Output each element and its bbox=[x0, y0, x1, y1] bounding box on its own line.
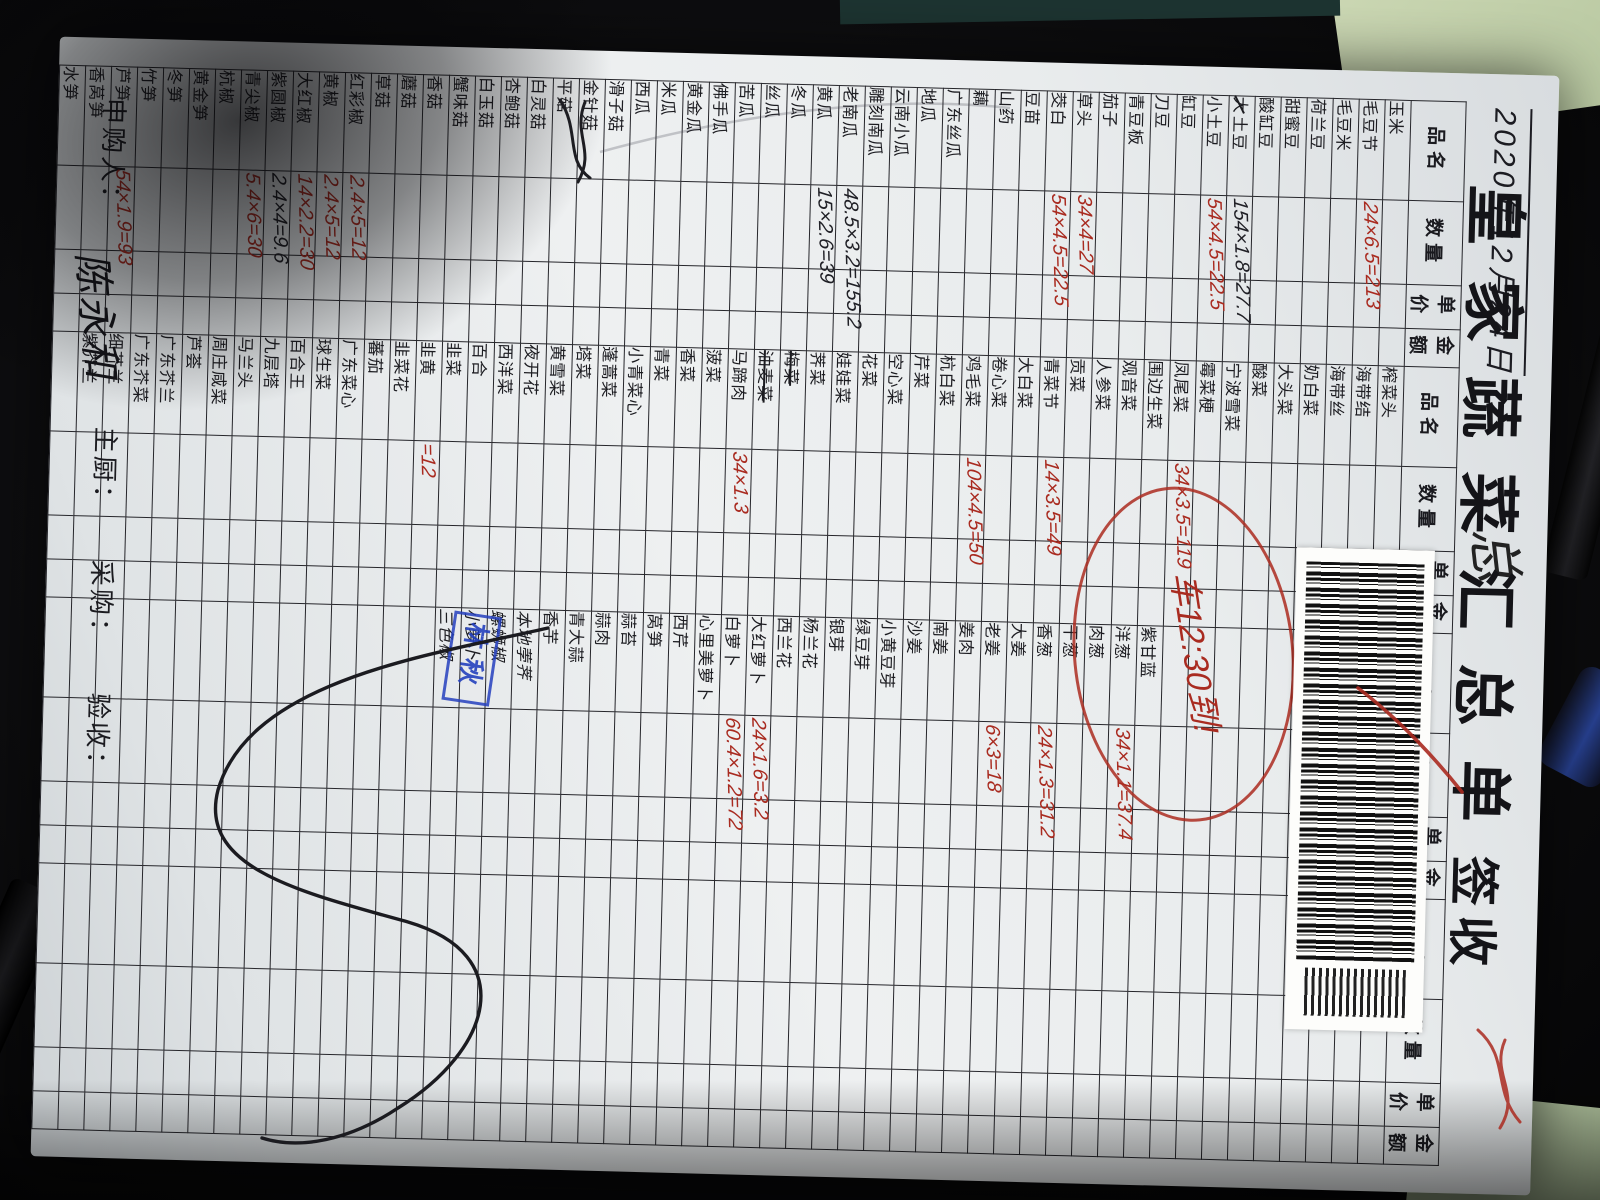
unit-price-cell bbox=[229, 520, 256, 565]
quantity-cell bbox=[353, 705, 381, 790]
item-name-cell: 荠菜 bbox=[804, 351, 833, 452]
amount-cell bbox=[1052, 851, 1079, 890]
item-name-cell: 青菜 bbox=[648, 347, 677, 448]
item-name-cell bbox=[251, 602, 280, 703]
amount-cell bbox=[877, 581, 904, 620]
handwritten-quantity: 104×4.5=50 bbox=[961, 456, 986, 542]
amount-cell bbox=[663, 841, 690, 880]
item-name-cell: 小土豆 bbox=[1201, 95, 1230, 196]
item-name-cell: 茭白 bbox=[1045, 91, 1074, 192]
quantity-cell bbox=[223, 702, 251, 787]
item-name-cell: 心里美萝卜 bbox=[693, 614, 722, 715]
quantity-cell bbox=[814, 983, 842, 1068]
item-name: 马蹄肉 bbox=[729, 349, 748, 402]
amount-cell bbox=[806, 313, 833, 352]
quantity-cell bbox=[757, 183, 785, 268]
item-name: 豆苗 bbox=[1022, 91, 1041, 126]
item-name: 水笋 bbox=[61, 66, 80, 101]
quantity-cell bbox=[159, 168, 187, 253]
item-name-cell: 南姜 bbox=[927, 620, 956, 721]
quantity-cell bbox=[776, 450, 804, 535]
quantity-cell bbox=[1094, 192, 1122, 277]
item-name-cell bbox=[199, 601, 228, 702]
requester-signature: 陈永和 bbox=[66, 250, 134, 383]
amount-cell bbox=[1201, 1121, 1228, 1160]
item-name: 西瓜 bbox=[633, 81, 652, 116]
item-name-cell: 韭菜花 bbox=[388, 340, 417, 441]
item-name-cell: 青尖椒 bbox=[239, 70, 268, 171]
quantity-cell bbox=[431, 707, 459, 792]
amount-cell bbox=[592, 573, 619, 612]
form-title-suffix: 签收 bbox=[1443, 855, 1502, 976]
item-name: 土豆 bbox=[1230, 116, 1249, 151]
amount-cell bbox=[370, 1100, 397, 1139]
unit-price-cell bbox=[989, 274, 1016, 319]
item-name: 缸豆 bbox=[1178, 95, 1197, 130]
unit-price-cell bbox=[871, 803, 898, 848]
quantity-cell bbox=[892, 985, 920, 1070]
quantity-cell bbox=[1055, 723, 1083, 808]
unit-price-cell bbox=[215, 1051, 242, 1096]
item-name-cell: 广东芥兰 bbox=[154, 334, 183, 435]
item-name-cell: 刀豆 bbox=[1149, 94, 1178, 195]
item-name-cell: 空心菜 bbox=[882, 353, 911, 454]
item-name-cell: 周庄咸菜 bbox=[206, 335, 235, 436]
item-name-cell: 杭椒 bbox=[213, 69, 242, 170]
amount-cell bbox=[689, 842, 716, 881]
item-name: 菠菜 bbox=[704, 349, 723, 384]
item-name-cell: 香葱 bbox=[1031, 623, 1060, 724]
quantity-cell bbox=[133, 167, 161, 252]
unit-price-cell bbox=[210, 253, 237, 298]
unit-price-cell bbox=[600, 263, 627, 308]
item-name-cell bbox=[381, 606, 410, 707]
quantity-cell: 34×1.3 bbox=[724, 449, 752, 534]
quantity-cell bbox=[1172, 194, 1200, 279]
quantity-cell bbox=[301, 704, 329, 789]
item-name-cell bbox=[920, 886, 949, 987]
unit-price-cell bbox=[755, 267, 782, 312]
unit-price-cell bbox=[839, 1068, 866, 1113]
unit-price-cell bbox=[496, 261, 523, 306]
item-name-cell bbox=[1024, 889, 1053, 990]
unit-price-cell bbox=[430, 791, 457, 836]
unit-price-cell bbox=[189, 1051, 216, 1096]
quantity-cell bbox=[119, 699, 147, 784]
unit-price-cell bbox=[937, 272, 964, 317]
amount-cell bbox=[455, 836, 482, 875]
item-name-cell bbox=[1206, 893, 1235, 994]
unit-price-cell bbox=[33, 1047, 60, 1092]
item-name-cell: 姜肉 bbox=[953, 621, 982, 722]
item-name: 广东丝瓜 bbox=[944, 89, 964, 159]
unit-price-cell bbox=[118, 783, 145, 828]
amount-cell bbox=[1019, 1117, 1046, 1156]
quantity-cell bbox=[242, 968, 270, 1053]
amount-cell bbox=[890, 1113, 917, 1152]
item-name-cell bbox=[400, 872, 429, 973]
unit-price-cell bbox=[1202, 1077, 1229, 1122]
unit-price-cell bbox=[1150, 1076, 1177, 1121]
quantity-cell bbox=[1178, 993, 1206, 1078]
quantity-cell bbox=[1230, 994, 1258, 1079]
amount-cell bbox=[365, 301, 392, 340]
unit-price-cell bbox=[392, 258, 419, 303]
unit-price-cell bbox=[1124, 1075, 1151, 1120]
amount-cell bbox=[500, 1103, 527, 1142]
amount-cell bbox=[962, 317, 989, 356]
quantity-cell bbox=[367, 173, 395, 258]
unit-price-cell bbox=[59, 1047, 86, 1092]
quantity-cell bbox=[502, 975, 530, 1060]
amount-cell bbox=[254, 564, 281, 603]
item-name: 西芹 bbox=[671, 614, 690, 649]
item-name-cell: 芹菜 bbox=[908, 353, 937, 454]
amount-cell bbox=[533, 838, 560, 877]
receiver-label: 验收： bbox=[79, 692, 118, 780]
crossed-out-prefix: 大 bbox=[1231, 96, 1249, 114]
unit-price-cell bbox=[761, 1066, 788, 1111]
amount-cell bbox=[391, 302, 418, 341]
quantity-cell bbox=[568, 445, 596, 530]
unit-price-cell bbox=[664, 797, 691, 842]
item-name: 奶白菜 bbox=[1301, 364, 1320, 417]
item-name: 毛豆节 bbox=[1360, 100, 1379, 153]
item-name-cell: 滑子菇 bbox=[603, 79, 632, 180]
amount-cell bbox=[261, 298, 288, 337]
item-name: 银芽 bbox=[827, 618, 846, 653]
item-name-cell: 平菇 bbox=[551, 78, 580, 179]
item-name-cell: 广东菜心 bbox=[336, 338, 365, 439]
amount-cell bbox=[786, 1110, 813, 1149]
unit-price-cell bbox=[236, 254, 263, 299]
unit-price-cell bbox=[553, 1060, 580, 1105]
item-name-cell bbox=[277, 603, 306, 704]
item-name-cell bbox=[147, 600, 176, 701]
barcode-bars bbox=[1296, 561, 1424, 962]
quantity-cell bbox=[379, 706, 407, 791]
unit-price-cell bbox=[579, 1061, 606, 1106]
unit-price-cell bbox=[333, 522, 360, 567]
item-name: 刀豆 bbox=[1152, 94, 1171, 129]
amount-cell bbox=[488, 570, 515, 609]
amount-cell bbox=[422, 1101, 449, 1140]
quantity-cell bbox=[658, 979, 686, 1064]
item-name: 芦荟 bbox=[184, 335, 203, 370]
item-name-cell bbox=[355, 605, 384, 706]
amount-cell bbox=[436, 569, 463, 608]
quantity-cell bbox=[1146, 194, 1174, 279]
amount-cell bbox=[702, 310, 729, 349]
item-name-cell bbox=[608, 878, 637, 979]
quantity-cell bbox=[178, 434, 206, 519]
amount-cell bbox=[1045, 1117, 1072, 1156]
item-name: 大红椒 bbox=[294, 72, 313, 125]
unit-price-cell bbox=[735, 1065, 762, 1110]
item-name-cell: 鸡毛菜 bbox=[960, 355, 989, 456]
amount-cell bbox=[292, 1098, 319, 1137]
amount-cell bbox=[1007, 584, 1034, 623]
amount-cell bbox=[358, 567, 385, 606]
amount-cell bbox=[955, 583, 982, 622]
unit-price-cell bbox=[1176, 1077, 1203, 1122]
amount-cell bbox=[1227, 1122, 1254, 1161]
unit-price-cell bbox=[794, 801, 821, 846]
item-name-cell: 花菜 bbox=[856, 352, 885, 453]
amount-cell bbox=[573, 307, 600, 346]
amount-cell bbox=[266, 1097, 293, 1136]
item-name-cell: 香菇 bbox=[421, 75, 450, 176]
item-name: 小青菜心 bbox=[625, 346, 645, 416]
quantity-cell bbox=[632, 978, 660, 1063]
amount-cell bbox=[183, 296, 210, 335]
amount-cell bbox=[552, 1104, 579, 1143]
amount-cell bbox=[313, 300, 340, 339]
quantity-cell bbox=[450, 974, 478, 1059]
item-name-cell: 大头菜 bbox=[1272, 363, 1301, 464]
item-name: 沙姜 bbox=[905, 620, 924, 655]
amount-cell bbox=[124, 561, 151, 600]
unit-price-cell bbox=[281, 521, 308, 566]
quantity-cell bbox=[171, 700, 199, 785]
amount-cell bbox=[1357, 1125, 1384, 1164]
unit-price-cell bbox=[527, 1060, 554, 1105]
unit-price-cell bbox=[378, 790, 405, 835]
quantity-cell bbox=[1256, 995, 1284, 1080]
quantity-cell: 24×1.3=31.2 bbox=[1029, 723, 1057, 808]
quantity-cell: 6×3=18 bbox=[977, 721, 1005, 806]
item-name-cell: 小黄豆芽 bbox=[875, 619, 904, 720]
unit-price-cell bbox=[800, 535, 827, 580]
column-header: 品名 bbox=[1409, 100, 1467, 201]
unit-price-cell bbox=[1280, 1079, 1307, 1124]
item-name: 云南小瓜 bbox=[892, 87, 912, 157]
column-header: 品名 bbox=[1402, 366, 1460, 467]
handwritten-quantity: 54×1.9=93 bbox=[110, 168, 135, 254]
item-name-cell bbox=[764, 882, 793, 983]
item-name-cell: 大红萝卜 bbox=[745, 615, 774, 716]
amount-cell bbox=[507, 837, 534, 876]
amount-cell bbox=[1331, 1125, 1358, 1164]
quantity-cell bbox=[762, 982, 790, 1067]
quantity-cell bbox=[393, 174, 421, 259]
item-name: 青大蒜 bbox=[566, 611, 585, 664]
item-name-cell bbox=[842, 884, 871, 985]
quantity-cell bbox=[419, 175, 447, 260]
item-name-cell: 贡菜 bbox=[1064, 358, 1093, 459]
quantity-cell bbox=[497, 177, 525, 262]
amount-cell bbox=[1279, 1123, 1306, 1162]
quantity-cell bbox=[528, 976, 556, 1061]
item-name-cell bbox=[556, 876, 585, 977]
item-name-cell: 马兰头 bbox=[232, 336, 261, 437]
amount-cell bbox=[793, 845, 820, 884]
unit-price-cell bbox=[943, 1071, 970, 1116]
unit-price-cell bbox=[826, 535, 853, 580]
item-name-cell: 白萝卜 bbox=[719, 615, 748, 716]
item-name: 黄金瓜 bbox=[684, 82, 703, 135]
unit-price-cell bbox=[683, 1064, 710, 1109]
item-name: 观音菜 bbox=[1119, 359, 1138, 412]
item-name-cell: 青大蒜 bbox=[563, 610, 592, 711]
quantity-cell bbox=[710, 980, 738, 1065]
unit-price-cell bbox=[885, 271, 912, 316]
unit-price-cell bbox=[203, 519, 230, 564]
item-name-cell: 大红椒 bbox=[291, 71, 320, 172]
item-name: 酸菜 bbox=[1249, 363, 1268, 398]
amount-cell bbox=[195, 829, 222, 868]
quantity-cell: 2.4×5=12 bbox=[341, 173, 369, 258]
item-name-cell: 黄金瓜 bbox=[681, 81, 710, 182]
amount-cell bbox=[221, 830, 248, 869]
amount-cell bbox=[625, 308, 652, 347]
item-name-cell: 油麦菜 bbox=[752, 349, 781, 450]
quantity-cell bbox=[594, 445, 622, 530]
item-name: 九层塔 bbox=[261, 337, 280, 390]
quantity-cell bbox=[471, 176, 499, 261]
unit-price-cell bbox=[475, 1058, 502, 1103]
amount-cell bbox=[540, 572, 567, 611]
amount-cell bbox=[1130, 853, 1157, 892]
amount-cell bbox=[547, 306, 574, 345]
quantity-cell bbox=[308, 438, 336, 523]
amount-cell bbox=[656, 1107, 683, 1146]
item-name-cell: 蓬蒿菜 bbox=[596, 345, 625, 446]
quantity-cell bbox=[913, 187, 941, 272]
quantity-cell bbox=[457, 708, 485, 793]
item-name: 大白菜 bbox=[1015, 357, 1034, 410]
item-name-cell: 菠菜 bbox=[700, 348, 729, 449]
item-name-cell: 大白菜 bbox=[1012, 356, 1041, 457]
item-name-cell bbox=[712, 880, 741, 981]
item-name: 黄椒 bbox=[321, 72, 340, 107]
quantity-cell bbox=[190, 967, 218, 1052]
unit-price-cell bbox=[1119, 277, 1146, 322]
quantity-cell bbox=[516, 443, 544, 528]
quantity-cell bbox=[991, 190, 1019, 275]
quantity-cell: 2.4×5=12 bbox=[315, 172, 343, 257]
unit-price-cell bbox=[541, 528, 568, 573]
unit-price-cell bbox=[489, 526, 516, 571]
quantity-cell bbox=[802, 451, 830, 536]
unit-price-cell bbox=[1171, 278, 1198, 323]
amount-cell bbox=[287, 299, 314, 338]
quantity-cell bbox=[932, 454, 960, 539]
amount-cell bbox=[1040, 319, 1067, 358]
item-name-cell: 草菇 bbox=[369, 73, 398, 174]
quantity-cell bbox=[1048, 989, 1076, 1074]
amount-cell bbox=[559, 838, 586, 877]
unit-price-cell bbox=[132, 251, 159, 296]
unit-price-cell bbox=[878, 537, 905, 582]
amount-cell bbox=[481, 836, 508, 875]
quantity-cell bbox=[138, 965, 166, 1050]
quantity-cell bbox=[476, 974, 504, 1059]
unit-price-cell bbox=[994, 1072, 1021, 1117]
unit-price-cell bbox=[1098, 1075, 1125, 1120]
unit-price-cell bbox=[137, 1049, 164, 1094]
item-name-cell: 蒜苔 bbox=[615, 612, 644, 713]
unit-price-cell bbox=[729, 267, 756, 312]
item-name: 紫圆椒 bbox=[268, 71, 287, 124]
unit-price-cell bbox=[1072, 1074, 1099, 1119]
amount-cell bbox=[1000, 850, 1027, 889]
item-name-cell bbox=[348, 871, 377, 972]
unit-price-cell bbox=[534, 794, 561, 839]
item-name: 青菜节 bbox=[1041, 357, 1060, 410]
amount-cell bbox=[760, 1110, 787, 1149]
handwritten-quantity: 48.5×3.2=155.2 bbox=[838, 187, 863, 273]
unit-price-cell bbox=[501, 1059, 528, 1104]
amount-cell bbox=[521, 305, 548, 344]
item-name: 姜肉 bbox=[957, 621, 976, 656]
unit-price-cell bbox=[697, 532, 724, 577]
unit-price-cell bbox=[923, 804, 950, 849]
amount-cell bbox=[910, 315, 937, 354]
quantity-cell: 54×4.5=22.5 bbox=[1043, 191, 1071, 276]
amount-cell bbox=[469, 304, 496, 343]
quantity-cell bbox=[152, 434, 180, 519]
item-name-cell: 黄雪菜 bbox=[544, 344, 573, 445]
unit-price-cell bbox=[371, 1056, 398, 1101]
quantity-cell bbox=[854, 452, 882, 537]
item-name-cell: 韭黄 bbox=[414, 340, 443, 441]
amount-cell bbox=[410, 568, 437, 607]
item-name-cell: 霉菜梗 bbox=[1194, 361, 1223, 462]
item-name: 老姜 bbox=[982, 622, 1001, 657]
quantity-cell bbox=[320, 970, 348, 1055]
quantity-cell bbox=[665, 713, 693, 798]
table-edge-strip bbox=[840, 0, 1340, 24]
unit-price-cell bbox=[1327, 282, 1354, 327]
item-name: 香菜 bbox=[678, 348, 697, 383]
quantity-cell bbox=[164, 966, 192, 1051]
unit-price-cell bbox=[366, 257, 393, 302]
item-name-cell: 广东芥菜 bbox=[128, 333, 157, 434]
quantity-cell: =12 bbox=[412, 440, 440, 525]
item-name: 地瓜 bbox=[918, 88, 937, 123]
item-name-cell: 藕 bbox=[967, 89, 996, 190]
item-name-cell bbox=[225, 602, 254, 703]
item-name: 茭白 bbox=[1048, 91, 1067, 126]
unit-price-cell bbox=[345, 1055, 372, 1100]
item-name: 绿豆芽 bbox=[852, 619, 871, 672]
unit-price-cell bbox=[612, 796, 639, 841]
item-name-cell bbox=[88, 864, 117, 965]
item-name: 蓬蒿菜 bbox=[599, 346, 618, 399]
handwritten-quantity: 15×2.6=39 bbox=[812, 186, 837, 272]
unit-price-cell bbox=[158, 252, 185, 297]
unit-price-cell bbox=[1306, 1080, 1333, 1125]
pen-blue bbox=[1534, 662, 1600, 792]
item-name-cell: 金针菇 bbox=[577, 79, 606, 180]
unit-price-cell bbox=[1079, 808, 1106, 853]
amount-cell bbox=[838, 1112, 865, 1151]
unit-price-cell bbox=[567, 529, 594, 574]
unit-price-cell bbox=[897, 803, 924, 848]
amount-cell bbox=[188, 1095, 215, 1134]
item-name: 香葱 bbox=[1034, 623, 1053, 658]
amount-cell bbox=[819, 845, 846, 884]
item-name-cell bbox=[972, 887, 1001, 988]
item-name-cell bbox=[303, 604, 332, 705]
amount-cell bbox=[637, 840, 664, 879]
amount-cell bbox=[1149, 1120, 1176, 1159]
amount-cell bbox=[1234, 856, 1261, 895]
quantity-cell bbox=[944, 987, 972, 1072]
item-name: 香芋 bbox=[541, 610, 560, 645]
item-name: 小土豆 bbox=[1204, 96, 1223, 149]
